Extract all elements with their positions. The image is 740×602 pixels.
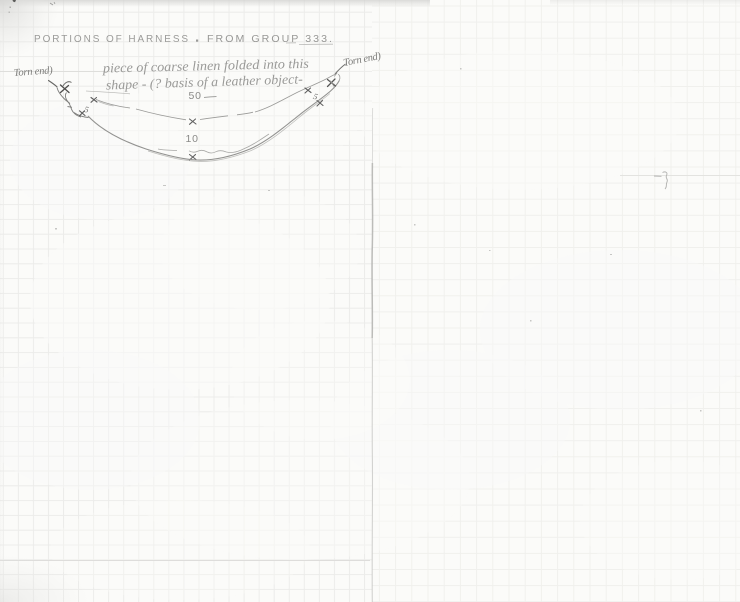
svg-text:50: 50 — [189, 90, 202, 102]
svg-text:FROM GROUP 333.: FROM GROUP 333. — [207, 34, 334, 45]
svg-text:10: 10 — [186, 133, 199, 145]
svg-text:PORTIONS OF HARNESS: PORTIONS OF HARNESS — [34, 34, 190, 45]
